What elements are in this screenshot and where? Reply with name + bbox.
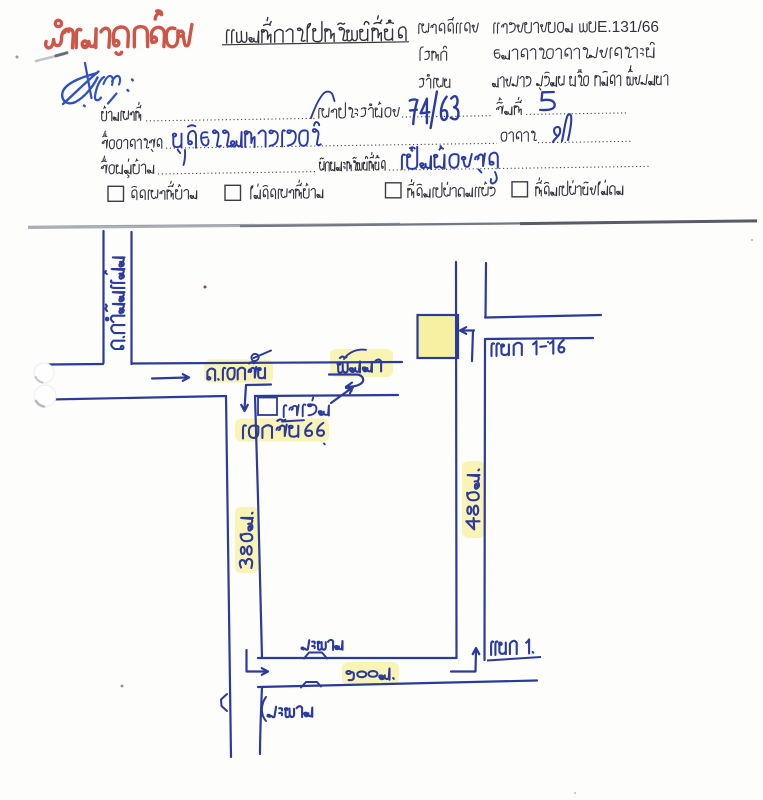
svg-text:E.131/66: E.131/66 bbox=[597, 19, 659, 36]
